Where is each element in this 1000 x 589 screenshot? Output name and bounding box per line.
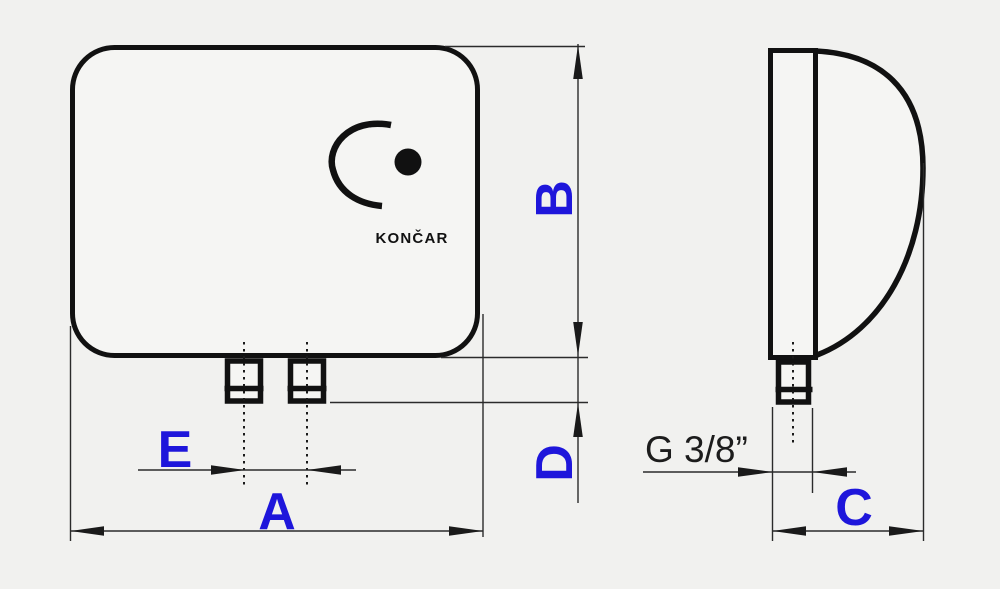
- front-pipe-left: [225, 361, 264, 401]
- front-view: KONČAR: [73, 48, 478, 488]
- side-pipe: [776, 362, 813, 402]
- koncar-logo-dot-icon: [395, 149, 422, 176]
- front-housing-outline: [73, 48, 478, 356]
- front-pipe-left-body: [228, 361, 261, 401]
- label-dimension-d: D: [526, 444, 584, 482]
- arrow-c-right: [889, 526, 924, 536]
- arrow-b-bottom: [573, 322, 583, 356]
- technical-drawing-canvas: KONČAR: [0, 0, 1000, 589]
- label-dimension-b: B: [526, 180, 584, 218]
- arrow-d-bottom: [573, 403, 583, 437]
- brand-wordmark: KONČAR: [375, 229, 448, 247]
- side-front-plate: [771, 51, 816, 358]
- label-dimension-c: C: [835, 479, 873, 537]
- arrow-e-left: [211, 465, 245, 475]
- arrow-a-left: [71, 526, 105, 536]
- arrow-e-right: [307, 465, 341, 475]
- side-pipe-body: [779, 362, 809, 402]
- arrow-a-right: [449, 526, 483, 536]
- arrow-c-left: [773, 526, 807, 536]
- side-view: [771, 51, 924, 444]
- label-thread-size: G 3/8”: [645, 429, 748, 470]
- arrow-b-top: [573, 45, 583, 79]
- water-heater-dimension-drawing: KONČAR: [0, 0, 1000, 589]
- label-dimension-e: E: [158, 421, 193, 479]
- label-dimension-a: A: [258, 483, 296, 541]
- front-pipe-right-body: [291, 361, 324, 401]
- front-pipe-right: [288, 361, 327, 401]
- arrow-thread-right: [813, 467, 848, 477]
